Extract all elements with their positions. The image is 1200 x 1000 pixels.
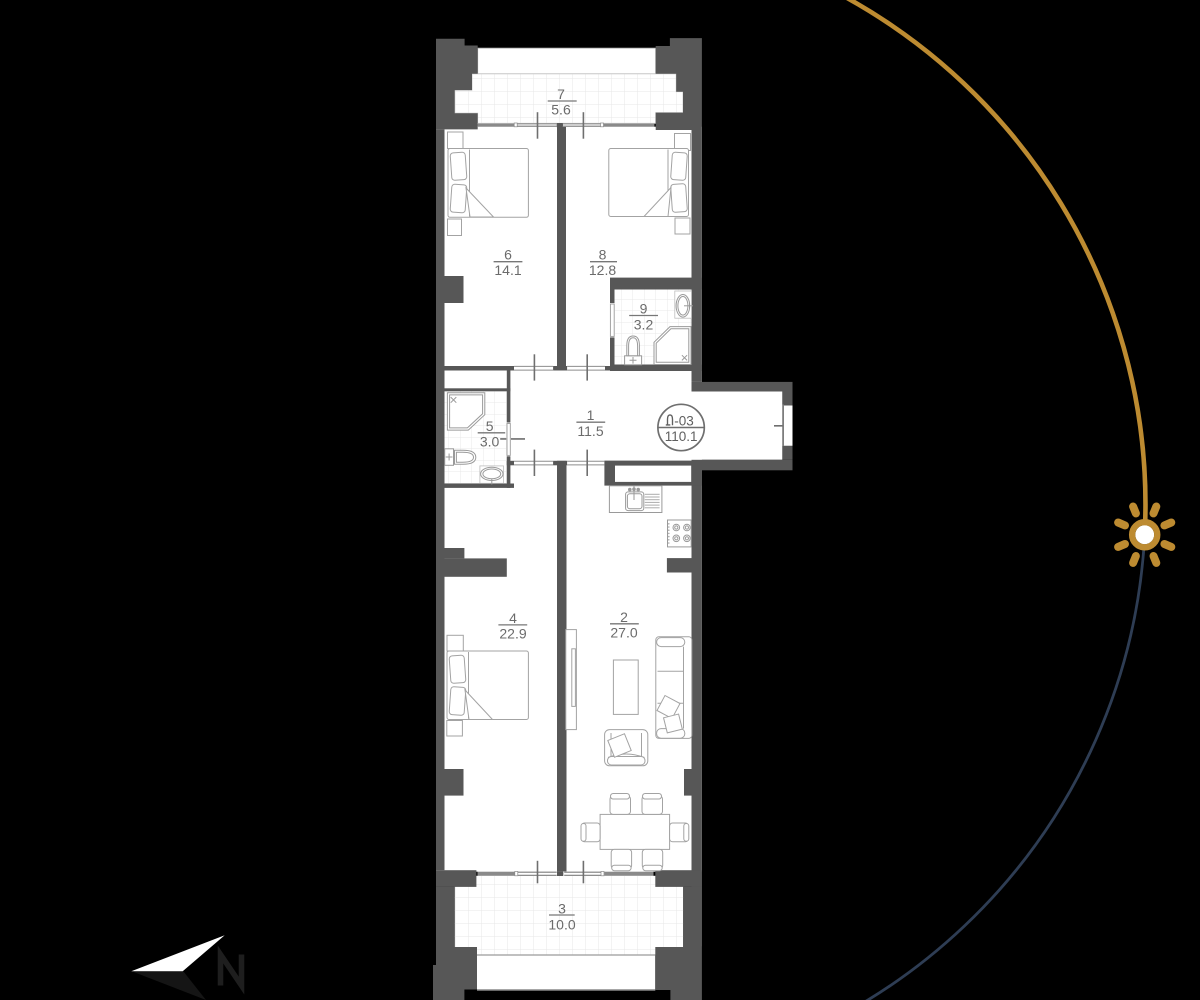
svg-text:9: 9 (640, 301, 648, 317)
svg-text:6: 6 (504, 247, 512, 263)
svg-text:7: 7 (557, 86, 565, 102)
svg-text:11.5: 11.5 (577, 423, 603, 439)
svg-text:14.1: 14.1 (494, 262, 521, 278)
svg-text:10.0: 10.0 (548, 917, 575, 933)
svg-text:2: 2 (620, 609, 628, 625)
svg-text:3: 3 (558, 901, 566, 917)
svg-text:110.1: 110.1 (665, 429, 698, 444)
svg-text:8: 8 (599, 247, 607, 263)
svg-text:4: 4 (509, 610, 517, 626)
svg-text:3.0: 3.0 (480, 434, 500, 450)
svg-text:12.8: 12.8 (589, 262, 616, 278)
svg-text:5.6: 5.6 (551, 102, 571, 118)
svg-text:1: 1 (587, 407, 595, 423)
svg-text:22.9: 22.9 (499, 626, 526, 642)
svg-text:-03: -03 (674, 413, 694, 428)
svg-text:3.2: 3.2 (634, 317, 654, 333)
svg-text:5: 5 (486, 418, 494, 434)
svg-text:27.0: 27.0 (610, 625, 637, 641)
